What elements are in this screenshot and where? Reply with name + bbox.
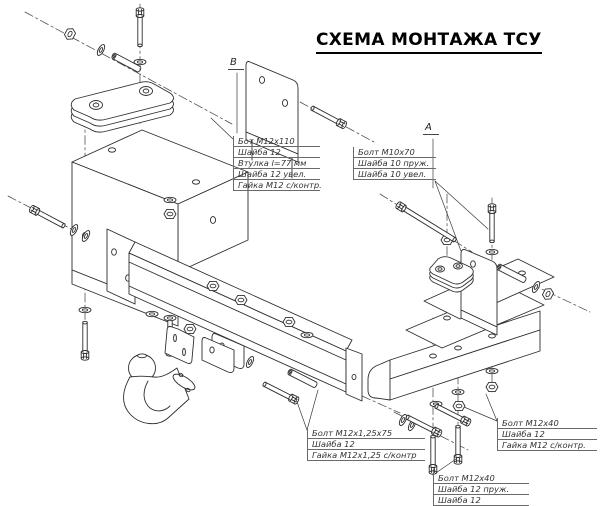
part-line: Шайба 12: [308, 439, 425, 450]
part-line: Шайба 12: [498, 429, 597, 440]
parts-label-right-lower: Болт М12х40 Шайба 12 пруж. Шайба 12: [433, 473, 529, 506]
part-line: Втулка l=77 мм: [234, 158, 320, 169]
part-line: Шайба 12: [234, 147, 320, 158]
part-line: Шайба 12 пруж.: [434, 484, 529, 495]
parts-label-right-side: Болт М12х40 Шайба 12 Гайка М12 с/контр.: [497, 418, 597, 451]
part-line: Шайба 10 увел.: [354, 169, 436, 180]
part-line: Шайба 12 увел.: [234, 169, 320, 180]
part-line: Гайка М12 с/контр.: [234, 180, 320, 191]
view-marker-a: А: [423, 122, 439, 135]
part-line: Болт М10х70: [354, 147, 436, 158]
parts-label-beam-lower: Болт М12х1,25х75 Шайба 12 Гайка М12х1,25…: [307, 428, 425, 461]
part-line: Шайба 12: [434, 495, 529, 506]
part-line: Гайка М12 с/контр.: [498, 440, 597, 451]
part-line: Бот М12х110: [234, 136, 320, 147]
parts-label-right-upper: Болт М10х70 Шайба 10 пруж. Шайба 10 увел…: [353, 147, 436, 180]
diagram-title: СХЕМА МОНТАЖА ТСУ: [316, 30, 542, 54]
part-line: Болт М12х1,25х75: [308, 428, 425, 439]
parts-label-left-upper: Бот М12х110 Шайба 12 Втулка l=77 мм Шайб…: [233, 136, 320, 191]
part-line: Шайба 10 пруж.: [354, 158, 436, 169]
part-line: Болт М12х40: [498, 418, 597, 429]
towbar-mounting-diagram: СХЕМА МОНТАЖА ТСУ В А Бот М12х110 Шайба …: [0, 0, 600, 506]
view-marker-b: В: [228, 57, 244, 70]
part-line: Гайка М12х1,25 с/контр: [308, 450, 425, 461]
part-line: Болт М12х40: [434, 473, 529, 484]
